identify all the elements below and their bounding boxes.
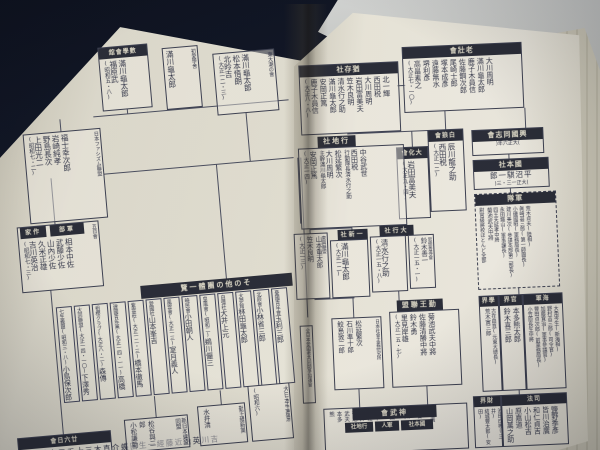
member-list-hakurokai: 辰川龍之助西田税(大正一二) — [429, 141, 461, 210]
member-name: 原嘉道 — [513, 407, 524, 443]
group-box-taikosha: 清水行之助(大正一五・八) — [370, 235, 408, 293]
group-box-rosokai: 會壯老 大川周明滿川龜太郎鹿子木員信佐藤鋼次郎尾崎士郎塚本成彥遠藤無水堺利彥高畠… — [402, 42, 525, 113]
member-list-taikosha: 清水行之助(大正一五・八) — [371, 237, 393, 292]
sub-header-gunjin: 人軍 — [375, 421, 399, 432]
member-list-shiho: 鹽野季彥皆川治廣和仁貞吉小山松吉原嘉道山岡萬之助 — [502, 403, 562, 445]
group-side-label-shiso-zendokai: 思想善導會 — [426, 237, 433, 260]
member-name: 結城豐太郎(安田) — [476, 409, 491, 446]
connector-line — [411, 131, 413, 147]
sector-box-shiho: 法司 鹽野季彥皆川治廣和仁貞吉小山松吉原嘉道山岡萬之助 — [501, 392, 569, 447]
sub-header-gyochisha: 社地行 — [345, 422, 373, 433]
member-list-kaigun: 大角岑生(新海相)野村吉三郎(司令官)加藤寛治(軍事參議官)豐田貞次郎(前軍務局… — [524, 303, 564, 389]
member-name: 小山松吉 — [522, 407, 533, 443]
member-name: 山岡萬之助 — [504, 408, 515, 444]
connector-line — [352, 297, 354, 317]
member-list-guntai: 荒木貞夫(陸相)眞崎甚三郎(第一師團長)小磯國昭(軍務局長)建川美次(參謀本部第… — [476, 203, 537, 287]
connector-line — [358, 389, 360, 407]
group-header-hakurokai: 會狼白 — [428, 129, 462, 141]
group-box-kokuhonsha: 社本國 郎一騏沼平 )三・三一正大( — [473, 157, 550, 190]
connector-line — [426, 386, 428, 404]
sub-header-kokuhonsha: 社本國 — [401, 419, 433, 430]
group-box-isshinsha: 滿川龜太郎(大正一二) — [330, 239, 370, 299]
group-box-shiso-zendokai: 思想善導會 鈴木善一(大正一五・一) — [408, 234, 436, 289]
connector-line — [398, 291, 399, 300]
group-box-kinno-renmei: 菊池武夫中將佐藤清勝中將鈴木勇里見岸雄(大正一五・七) — [389, 309, 462, 388]
sector-header-zaikai: 界財 — [474, 396, 500, 407]
group-header-guntai: 隊軍 — [475, 192, 555, 206]
sector-box-zaikai: 界財 池田成彬(三井)結城豐太郎(安田) — [473, 395, 503, 448]
sector-header-gakkai: 界學 — [480, 296, 498, 307]
sector-header-kaigun: 軍海 — [523, 293, 561, 305]
member-list-kinno-renmei: 菊池武夫中將佐藤清勝中將鈴木勇里見岸雄(大正一五・七) — [390, 311, 440, 387]
member-list-isshinsha: 滿川龜太郎(大正一二) — [331, 240, 353, 297]
group-box-shugi-lab: 日本社會主義研究所 松延繁次石川準十郎鮫島敦二郎 — [331, 316, 384, 390]
member-list-gakkai: 古在由直(元東大總長)荒木寅三郎 — [480, 306, 502, 391]
member-name: 和仁貞吉 — [531, 406, 542, 442]
member-name: 本多熊 — [326, 411, 342, 428]
member-list-kankai: 本多熊太郎鈴木喜三郎 — [500, 305, 526, 390]
group-side-label-shugi-lab: 日本社會主義研究所 — [373, 319, 381, 360]
book-gutter-shadow — [284, 4, 328, 450]
book-photo: 舘會學數 滿川龜太郎福原武(昭和五・八) 初愛學舍 滿川龜太郎 東大潮の會 滿川… — [0, 0, 600, 450]
group-box-hakurokai: 會狼白 辰川龍之助西田税(大正一二) — [427, 128, 467, 211]
connector-line — [524, 108, 526, 128]
member-name: 鹽野季彥 — [549, 406, 560, 442]
sector-header-kankai: 界官 — [500, 295, 522, 306]
group-box-guntai: 隊軍 荒木貞夫(陸相)眞崎甚三郎(第一師團長)小磯國昭(軍務局長)建川美次(參謀… — [474, 190, 560, 289]
sector-box-kaigun: 軍海 大角岑生(新海相)野村吉三郎(司令官)加藤寛治(軍事參議官)豐田貞次郎(前… — [522, 292, 566, 390]
group-box-kokoku-doshikai: 會志同國興 )年六正大( — [471, 127, 544, 156]
member-name: 皆川治廣 — [540, 406, 551, 442]
group-box-jinmukai: 會武神 社地行 人軍 社本國 石原廣一郎(日滿)松川清野田俊河本大佐松井菊池武夫… — [323, 403, 469, 450]
member-list-rosokai: 大川周明滿川龜太郎鹿子木員信佐藤鋼次郎尾崎士郎塚本成彥遠藤無水堺利彥高畠素之(大… — [403, 55, 497, 111]
member-list-shugi-lab: 松延繁次石川準十郎鮫島敦二郎 — [332, 318, 371, 390]
connector-line — [444, 111, 446, 129]
